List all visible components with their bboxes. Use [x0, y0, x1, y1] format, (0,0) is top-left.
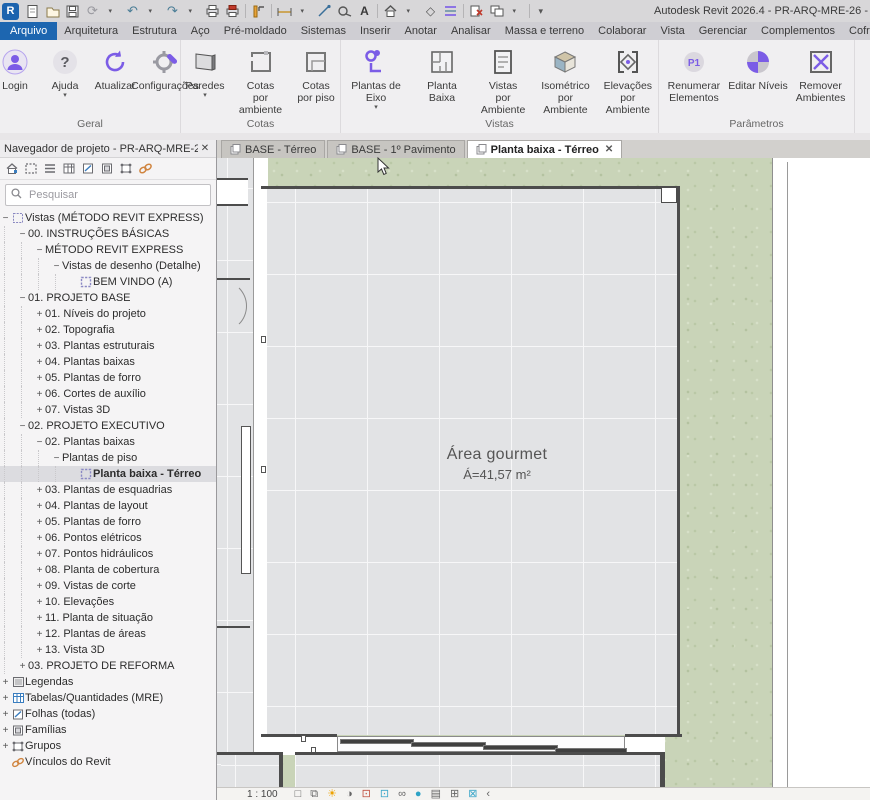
search-input[interactable] — [27, 188, 205, 202]
iso-icon — [550, 47, 580, 77]
tree-item-04-plantas-baixas[interactable]: +04. Plantas baixas — [0, 354, 216, 370]
tree-item-13-vista-3d[interactable]: +13. Vista 3D — [0, 642, 216, 658]
link-icon[interactable] — [138, 162, 153, 175]
tree-item-label: MÉTODO REVIT EXPRESS — [45, 244, 183, 256]
roomviews-icon — [488, 47, 518, 77]
main-room-top-wall — [261, 186, 680, 189]
tree-expander[interactable]: + — [34, 517, 45, 528]
panel-label: Vistas — [341, 116, 658, 133]
group-icon[interactable] — [119, 162, 133, 175]
tree-item-03-projeto-de-reforma[interactable]: +03. PROJETO DE REFORMA — [0, 658, 216, 674]
tree-expander[interactable]: − — [17, 229, 28, 240]
tree-guide — [21, 530, 34, 546]
tree-expander[interactable]: + — [17, 661, 28, 672]
renumerar-elementos-button[interactable]: P1Renumerar Elementos — [665, 47, 724, 104]
tree-guide — [4, 306, 17, 322]
tree-expander[interactable]: + — [34, 581, 45, 592]
tree-expander[interactable]: + — [34, 389, 45, 400]
tree-guide — [21, 482, 34, 498]
ribbon-tab-analisar[interactable]: Analisar — [444, 22, 498, 40]
sync-icon[interactable]: ⟳ — [83, 2, 102, 20]
tree-expander[interactable]: + — [34, 373, 45, 384]
tree-item-vistas-metodo-revit-express[interactable]: −Vistas (MÉTODO REVIT EXPRESS) — [0, 210, 216, 226]
tree-expander[interactable]: + — [0, 741, 11, 752]
tree-item-vistas-de-desenho-detalhe[interactable]: −Vistas de desenho (Detalhe) — [0, 258, 216, 274]
tree-item-label: 13. Vista 3D — [45, 644, 105, 656]
view-tab-label: BASE - Térreo — [245, 144, 316, 156]
grid-icon[interactable]: ⊞ — [450, 789, 459, 800]
dropdown-caret-icon[interactable]: ▾ — [401, 2, 420, 20]
view-tab-base-1-pavimento[interactable]: BASE - 1º Pavimento — [327, 140, 464, 158]
tree-expander[interactable]: + — [0, 677, 11, 688]
table-icon — [11, 692, 25, 704]
ribbon-tab-complementos[interactable]: Complementos — [754, 22, 842, 40]
tree-guide — [4, 594, 17, 610]
tree-expander[interactable]: + — [34, 597, 45, 608]
tree-guide — [4, 466, 17, 482]
planta-baixa-button[interactable]: Planta Baixa — [413, 47, 471, 104]
vistas-por-ambiente-button[interactable]: Vistas por Ambiente — [473, 47, 533, 116]
tree-guide — [4, 498, 17, 514]
walls-icon — [190, 47, 220, 77]
textA-icon[interactable]: A — [355, 2, 374, 20]
tree-item-metodo-revit-express[interactable]: −MÉTODO REVIT EXPRESS — [0, 242, 216, 258]
tree-item-label: Vistas (MÉTODO REVIT EXPRESS) — [25, 212, 204, 224]
chevron-down-icon: ▾ — [374, 105, 378, 111]
terrace-floor — [295, 755, 660, 787]
tree-guide — [21, 450, 34, 466]
quick-access-toolbar: R⟳▾↶▾↷▾▾A▾◇▾▾ — [2, 2, 552, 20]
home-icon[interactable] — [381, 2, 400, 20]
button-label: Plantas de Eixo — [344, 80, 408, 104]
ribbon-panel-cotas: Paredes▾Cotas por ambienteCotas por piso… — [181, 40, 341, 133]
tree-guide — [4, 546, 17, 562]
family-icon[interactable] — [100, 162, 114, 175]
tree-guide — [4, 402, 17, 418]
diamond-icon[interactable]: ◇ — [421, 2, 440, 20]
window-title: Autodesk Revit 2026.4 - PR-ARQ-MRE-26 - — [654, 0, 868, 22]
schedule-list-icon[interactable] — [43, 162, 57, 175]
tree-item-bem-vindo-a[interactable]: BEM VINDO (A) — [0, 274, 216, 290]
ribbon-tab-massa-e-terreno[interactable]: Massa e terreno — [498, 22, 591, 40]
removeamb-icon — [806, 47, 836, 77]
tree-item-label: 00. INSTRUÇÕES BÁSICAS — [28, 228, 169, 240]
help-icon: ? — [50, 47, 80, 77]
ribbon-tab-arquitetura[interactable]: Arquitetura — [57, 22, 125, 40]
login-icon — [0, 47, 30, 77]
tree-item-11-planta-de-situacao[interactable]: +11. Planta de situação — [0, 610, 216, 626]
tree-item-06-cortes-de-auxilio[interactable]: +06. Cortes de auxílio — [0, 386, 216, 402]
button-label: Cotas por piso — [297, 80, 334, 104]
wins-icon[interactable] — [487, 2, 506, 20]
ribbon-tab-gerenciar[interactable]: Gerenciar — [692, 22, 754, 40]
tree-expander[interactable]: + — [34, 533, 45, 544]
family-icon — [11, 724, 25, 737]
tree-guide — [4, 514, 17, 530]
project-browser-tree: −Vistas (MÉTODO REVIT EXPRESS)−00. INSTR… — [0, 208, 216, 800]
shadow-icon[interactable]: ◑ — [346, 789, 353, 800]
tree-guide — [4, 226, 17, 242]
chevron-down-icon: ▾ — [203, 93, 207, 99]
tree-guide — [21, 562, 34, 578]
tree-item-label: 10. Elevações — [45, 596, 114, 608]
views-icon — [11, 212, 25, 224]
ribbon-tab-arquivo[interactable]: Arquivo — [0, 22, 57, 40]
tree-item-label: Folhas (todas) — [25, 708, 95, 720]
tree-item-00-instrucoes-basicas[interactable]: −00. INSTRUÇÕES BÁSICAS — [0, 226, 216, 242]
home-icon[interactable] — [5, 162, 19, 175]
dropdown-caret-icon[interactable]: ▾ — [295, 2, 314, 20]
tree-expander[interactable]: + — [34, 405, 45, 416]
tree-item-label: Tabelas/Quantidades (MRE) — [25, 692, 163, 704]
close-icon[interactable]: ✕ — [198, 143, 212, 154]
drawing-area[interactable]: Área gourmet Á=41,57 m² — [217, 158, 870, 787]
door-leaf — [241, 426, 251, 574]
tree-item-05-plantas-de-forro[interactable]: +05. Plantas de forro — [0, 370, 216, 386]
tree-guide — [55, 274, 68, 290]
group-icon — [11, 740, 25, 753]
svg-text:?: ? — [60, 54, 69, 71]
tree-item-label: Legendas — [25, 676, 73, 688]
tree-item-vinculos-do-revit[interactable]: Vínculos do Revit — [0, 754, 216, 770]
tree-guide — [4, 418, 17, 434]
button-label: Remover Ambientes — [796, 80, 846, 104]
tree-item-09-vistas-de-corte[interactable]: +09. Vistas de corte — [0, 578, 216, 594]
sliding-panel-2 — [411, 742, 486, 747]
tree-item-02-topografia[interactable]: +02. Topografia — [0, 322, 216, 338]
tree-item-label: 03. Plantas de esquadrias — [45, 484, 172, 496]
tree-expander[interactable]: − — [51, 453, 62, 464]
button-label: Ajuda — [52, 80, 79, 92]
view-scale[interactable]: 1 : 100 — [247, 789, 278, 800]
tree-item-12-plantas-de-areas[interactable]: +12. Plantas de áreas — [0, 626, 216, 642]
dropdown-caret-icon[interactable]: ▾ — [103, 2, 122, 20]
ribbon-panel-vistas: Plantas de Eixo▾Planta BaixaVistas por A… — [341, 40, 659, 133]
view-tab-base-terreo[interactable]: BASE - Térreo — [221, 140, 325, 158]
tree-guide — [4, 658, 17, 674]
refresh-icon — [100, 47, 130, 77]
view-tab-icon — [476, 144, 487, 155]
tree-expander[interactable]: + — [34, 309, 45, 320]
plantas-de-eixo-button[interactable]: Plantas de Eixo▾ — [341, 47, 411, 111]
editar-niveis-button[interactable]: Editar Níveis — [725, 47, 791, 92]
tree-guide — [21, 322, 34, 338]
qat-separator — [245, 4, 246, 18]
jamb-fixture — [301, 735, 306, 742]
panel-label: Parâmetros — [659, 116, 854, 133]
tree-item-grupos[interactable]: +Grupos — [0, 738, 216, 754]
ribbon-tab-aco[interactable]: Aço — [184, 22, 217, 40]
chev-icon[interactable]: ‹ — [486, 789, 490, 800]
book-icon[interactable]: ⧉ — [310, 789, 318, 800]
sun-icon[interactable]: ☀ — [327, 789, 337, 800]
tree-guide — [4, 578, 17, 594]
lower-left-room-floor — [221, 755, 279, 787]
tree-expander[interactable]: + — [34, 485, 45, 496]
closered-icon[interactable] — [467, 2, 486, 20]
tree-expander[interactable]: − — [51, 261, 62, 272]
tree-expander[interactable]: + — [34, 341, 45, 352]
tree-guide — [21, 354, 34, 370]
tree-guide — [4, 642, 17, 658]
tree-guide — [21, 546, 34, 562]
tree-item-folhas-todas[interactable]: +Folhas (todas) — [0, 706, 216, 722]
tree-item-familias[interactable]: +Famílias — [0, 722, 216, 738]
roomdim-icon — [246, 47, 276, 77]
panel-label: Geral — [0, 116, 180, 133]
bottom-wall-right — [625, 734, 682, 737]
ribbon: Login?Ajuda▾AtualizarConfiguraçõesGeralP… — [0, 40, 870, 134]
tree-guide — [21, 514, 34, 530]
button-label: Isométrico por Ambiente — [538, 80, 592, 116]
cotas-por-ambiente-button[interactable]: Cotas por ambiente — [231, 47, 290, 116]
tree-expander[interactable]: − — [0, 213, 11, 224]
section-icon[interactable] — [315, 2, 334, 20]
ribbon-tab-sistemas[interactable]: Sistemas — [294, 22, 353, 40]
project-browser: Navegador de projeto - PR-ARQ-MRE-26 ✕ −… — [0, 140, 217, 800]
button-label: Elevações por Ambiente — [601, 80, 655, 116]
tree-expander[interactable]: + — [34, 629, 45, 640]
doc-icon[interactable] — [23, 2, 42, 20]
viewport-icon[interactable] — [24, 162, 38, 175]
tree-guide — [4, 434, 17, 450]
elev-icon — [613, 47, 643, 77]
ribbon-tab-anotar[interactable]: Anotar — [398, 22, 444, 40]
tree-item-label: Famílias — [25, 724, 67, 736]
tree-item-01-niveis-do-projeto[interactable]: +01. Níveis do projeto — [0, 306, 216, 322]
tree-item-10-elevacoes[interactable]: +10. Elevações — [0, 594, 216, 610]
tree-item-label: 07. Vistas 3D — [45, 404, 110, 416]
tree-item-02-projeto-executivo[interactable]: −02. PROJETO EXECUTIVO — [0, 418, 216, 434]
levels-icon — [743, 47, 773, 77]
print-icon[interactable] — [203, 2, 222, 20]
renum-icon: P1 — [679, 47, 709, 77]
cotas-por-piso-button[interactable]: Cotas por piso — [292, 47, 340, 104]
button-label: Atualizar — [95, 80, 136, 92]
paredes-button[interactable]: Paredes▾ — [181, 47, 229, 99]
tree-item-tabelas-quantidades-mre[interactable]: +Tabelas/Quantidades (MRE) — [0, 690, 216, 706]
tree-expander[interactable]: + — [0, 709, 11, 720]
tree-guide — [38, 258, 51, 274]
tree-guide — [4, 242, 17, 258]
svg-text:P1: P1 — [688, 58, 701, 69]
button-label: Paredes — [185, 80, 224, 92]
tree-guide — [21, 258, 34, 274]
glasses-icon[interactable]: ∞ — [398, 789, 406, 800]
mouse-cursor — [376, 157, 390, 180]
isometrico-por-ambiente-button[interactable]: Isométrico por Ambiente — [535, 47, 595, 116]
tree-item-label: 02. Plantas baixas — [45, 436, 135, 448]
tree-item-07-vistas-3d[interactable]: +07. Vistas 3D — [0, 402, 216, 418]
tree-guide — [21, 402, 34, 418]
ribbon-tab-cofragem[interactable]: Cofragem — [842, 22, 870, 40]
save-icon[interactable] — [63, 2, 82, 20]
tape-icon[interactable] — [335, 2, 354, 20]
tree-expander[interactable]: + — [34, 357, 45, 368]
tree-guide — [55, 466, 68, 482]
view-tab-icon — [336, 144, 347, 155]
tree-item-06-pontos-eletricos[interactable]: +06. Pontos elétricos — [0, 530, 216, 546]
tree-item-01-projeto-base[interactable]: −01. PROJETO BASE — [0, 290, 216, 306]
ajuda-button[interactable]: ?Ajuda▾ — [41, 47, 89, 99]
sheet-icon[interactable] — [81, 162, 95, 175]
tree-item-05-plantas-de-forro[interactable]: +05. Plantas de forro — [0, 514, 216, 530]
tree-item-07-pontos-hidraulicos[interactable]: +07. Pontos hidráulicos — [0, 546, 216, 562]
sliding-panel-1 — [340, 739, 414, 744]
dropdown-caret-icon[interactable]: ▾ — [507, 2, 526, 20]
view-tab-icon — [230, 144, 241, 155]
tree-item-label: 12. Plantas de áreas — [45, 628, 146, 640]
ribbon-tab-pre-moldado[interactable]: Pré-moldado — [217, 22, 294, 40]
settings-icon — [150, 47, 180, 77]
tree-item-label: 07. Pontos hidráulicos — [45, 548, 153, 560]
tree-expander[interactable]: − — [34, 437, 45, 448]
tree-guide — [4, 322, 17, 338]
room-tag[interactable]: Área gourmet Á=41,57 m² — [387, 446, 607, 482]
tree-item-label: 02. PROJETO EXECUTIVO — [28, 420, 165, 432]
tree-expander[interactable]: + — [0, 725, 11, 736]
view-tab-label: Planta baixa - Térreo — [491, 144, 599, 156]
tree-expander[interactable]: − — [17, 421, 28, 432]
axisplan-icon — [361, 47, 391, 77]
schedule-table-icon[interactable] — [62, 162, 76, 175]
tree-guide — [4, 258, 17, 274]
search-box[interactable] — [5, 184, 211, 206]
ribbon-panel-geral: Login?Ajuda▾AtualizarConfiguraçõesGeral — [0, 40, 181, 133]
project-browser-title: Navegador de projeto - PR-ARQ-MRE-26 — [4, 143, 198, 155]
close-icon[interactable]: ✕ — [605, 144, 613, 155]
tree-item-label: Planta baixa - Térreo — [93, 468, 201, 480]
qat-separator — [377, 4, 378, 18]
tree-expander[interactable]: + — [34, 501, 45, 512]
tree-item-label: 05. Plantas de forro — [45, 372, 141, 384]
remover-ambientes-button[interactable]: Remover Ambientes — [793, 47, 849, 104]
tree-guide — [4, 274, 17, 290]
left-wall-segment-2 — [217, 626, 250, 628]
tree-guide — [4, 450, 17, 466]
tree-expander[interactable]: + — [34, 645, 45, 656]
legend-icon — [11, 676, 25, 688]
tree-item-04-plantas-de-layout[interactable]: +04. Plantas de layout — [0, 498, 216, 514]
tree-item-label: 06. Cortes de auxílio — [45, 388, 146, 400]
tree-item-08-planta-de-cobertura[interactable]: +08. Planta de cobertura — [0, 562, 216, 578]
tree-guide — [4, 610, 17, 626]
tree-guide — [38, 274, 51, 290]
tree-item-02-plantas-baixas[interactable]: −02. Plantas baixas — [0, 434, 216, 450]
tree-expander[interactable]: + — [34, 565, 45, 576]
login-button[interactable]: Login — [0, 47, 39, 92]
tree-guide — [21, 338, 34, 354]
tree-item-label: 02. Topografia — [45, 324, 115, 336]
tree-guide — [21, 498, 34, 514]
ribbon-tab-estrutura[interactable]: Estrutura — [125, 22, 184, 40]
tree-guide — [4, 354, 17, 370]
cropb-icon[interactable]: ⊡ — [380, 789, 389, 800]
dropdown-caret-icon[interactable]: ▾ — [533, 2, 552, 20]
tree-guide — [4, 562, 17, 578]
dot-icon[interactable]: ● — [415, 789, 422, 800]
main-room-right-wall — [677, 186, 680, 737]
crop-boundary-line — [787, 162, 788, 787]
tree-item-03-plantas-estruturais[interactable]: +03. Plantas estruturais — [0, 338, 216, 354]
view-icon — [79, 276, 93, 288]
tree-guide — [4, 370, 17, 386]
tree-expander[interactable]: + — [0, 693, 11, 704]
tree-expander[interactable]: − — [17, 293, 28, 304]
ribbon-tab-inserir[interactable]: Inserir — [353, 22, 398, 40]
corner-column — [661, 187, 677, 203]
tree-item-label: BEM VINDO (A) — [93, 276, 172, 288]
qat-separator — [529, 4, 530, 18]
button-label: Cotas por ambiente — [234, 80, 287, 116]
tree-item-legendas[interactable]: +Legendas — [0, 674, 216, 690]
tree-guide — [21, 434, 34, 450]
ribbon-tab-colaborar[interactable]: Colaborar — [591, 22, 653, 40]
tree-guide — [4, 290, 17, 306]
frame-icon[interactable]: □ — [295, 789, 302, 800]
tree-guide — [21, 370, 34, 386]
sliding-panel-3 — [483, 745, 558, 750]
revit-window: { "window": { "title": "Autodesk Revit 2… — [0, 0, 870, 800]
dropdown-caret-icon[interactable]: ▾ — [143, 2, 162, 20]
tree-expander[interactable]: + — [34, 549, 45, 560]
tree-item-label: 01. Níveis do projeto — [45, 308, 146, 320]
tree-item-planta-baixa-terreo[interactable]: Planta baixa - Térreo — [0, 466, 216, 482]
link-icon — [11, 756, 25, 769]
tree-guide — [21, 578, 34, 594]
room-area-value: Á=41,57 m² — [387, 467, 607, 482]
tree-guide — [21, 386, 34, 402]
boxsel-icon[interactable]: ⊠ — [468, 789, 477, 800]
tree-item-label: Plantas de piso — [62, 452, 137, 464]
bottom-wall-left — [261, 734, 337, 737]
modify-icon[interactable] — [249, 2, 268, 20]
view-control-icons: □⧉☀◑⊡⊡∞●▤⊞⊠‹ — [295, 789, 491, 800]
view-tab-planta-baixa-terreo[interactable]: Planta baixa - Térreo✕ — [467, 140, 623, 158]
folder-icon[interactable] — [43, 2, 62, 20]
doc-icon[interactable]: ▤ — [431, 789, 441, 800]
ribbon-panel-parametros: P1Renumerar ElementosEditar NíveisRemove… — [659, 40, 855, 133]
qat-separator — [271, 4, 272, 18]
dropdown-caret-icon[interactable]: ▾ — [183, 2, 202, 20]
elevacoes-por-ambiente-button[interactable]: Elevações por Ambiente — [598, 47, 658, 116]
dim-icon[interactable] — [275, 2, 294, 20]
search-icon — [11, 188, 22, 202]
button-label: Planta Baixa — [416, 80, 468, 104]
tree-expander[interactable]: + — [34, 613, 45, 624]
floordim-icon — [301, 47, 331, 77]
redo-icon[interactable]: ↷ — [163, 2, 182, 20]
cropr-icon[interactable]: ⊡ — [362, 789, 371, 800]
tree-guide — [21, 306, 34, 322]
revit-logo-icon[interactable]: R — [2, 3, 22, 20]
tree-guide — [4, 386, 17, 402]
tree-expander[interactable]: − — [34, 245, 45, 256]
button-label: Editar Níveis — [728, 80, 788, 92]
tree-guide — [21, 242, 34, 258]
tree-guide — [4, 482, 17, 498]
tree-item-plantas-de-piso[interactable]: −Plantas de piso — [0, 450, 216, 466]
tree-item-03-plantas-de-esquadrias[interactable]: +03. Plantas de esquadrias — [0, 482, 216, 498]
print-red-icon[interactable] — [223, 2, 242, 20]
project-browser-header[interactable]: Navegador de projeto - PR-ARQ-MRE-26 ✕ — [0, 140, 216, 158]
tree-guide — [38, 466, 51, 482]
tree-item-label: 04. Plantas de layout — [45, 500, 148, 512]
undo-icon[interactable]: ↶ — [123, 2, 142, 20]
listp-icon[interactable] — [441, 2, 460, 20]
ribbon-tab-vista[interactable]: Vista — [653, 22, 691, 40]
tree-expander[interactable]: + — [34, 325, 45, 336]
